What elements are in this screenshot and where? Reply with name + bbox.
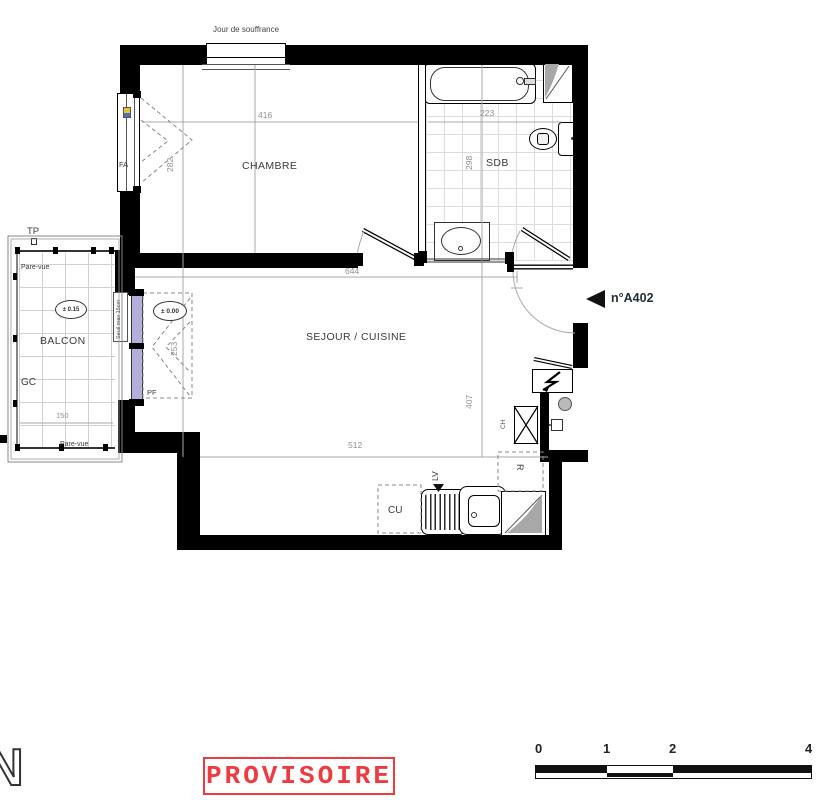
kitchen-sink-drain — [471, 512, 477, 518]
bathtub — [424, 63, 536, 104]
dim-sdb-width: 223 — [480, 108, 494, 118]
scale-bar-rule — [535, 765, 812, 779]
label-cu: CU — [388, 505, 402, 516]
dim-pf-width: 253 — [169, 342, 179, 356]
scale-tick-4: 4 — [805, 741, 812, 756]
label-lv: LV — [430, 471, 440, 481]
dim-chambre-width: 416 — [258, 110, 272, 120]
shaft-top — [543, 63, 573, 103]
scale-bar: 0 1 2 4 — [535, 741, 815, 785]
meter-box — [551, 419, 563, 431]
wall-left-upper — [120, 45, 140, 95]
toilet-seat — [537, 133, 549, 145]
bathtub-inner — [430, 67, 529, 101]
kitchen-sink — [459, 486, 506, 535]
scale-seg-1-2-bottom — [607, 773, 673, 777]
wall-top — [120, 45, 588, 65]
room-label-sdb: SDB — [486, 157, 509, 169]
label-jour-de-souffrance: Jour de souffrance — [205, 25, 287, 34]
label-refrigerator: R — [515, 464, 525, 471]
shaft-bottom — [501, 491, 546, 536]
dim-sejour-depth: 407 — [464, 395, 474, 409]
floor-plan: CHAMBRE SDB SEJOUR / CUISINE BALCON Jour… — [0, 0, 817, 800]
window-fa-marker-icon — [123, 107, 131, 118]
label-gc: GC — [21, 377, 36, 388]
label-tp: TP — [27, 226, 39, 237]
wall-entry-jamb — [573, 323, 588, 368]
scale-seg-0-1-bottom — [536, 773, 607, 777]
room-label-sejour: SEJOUR / CUISINE — [306, 331, 406, 343]
sdb-sink-drain — [458, 246, 463, 251]
provisoire-stamp: PROVISOIRE — [203, 757, 395, 795]
wall-right-upper — [573, 45, 588, 268]
scale-tick-2: 2 — [669, 741, 676, 756]
label-ch: CH — [500, 420, 507, 429]
wall-bottom — [195, 535, 562, 550]
ch-unit — [514, 406, 538, 444]
apartment-number: n°A402 — [611, 291, 654, 305]
electrical-panel — [532, 369, 573, 393]
scale-seg-2-4-bottom — [673, 773, 811, 777]
label-seuil: Seuil max 15cm — [116, 300, 122, 339]
level-balcony-value: ± 0.15 — [63, 307, 80, 313]
tp-marker — [31, 238, 37, 245]
dim-balcon-width: 150 — [56, 411, 69, 420]
dim-chambre-depth: 282 — [165, 158, 175, 172]
scale-tick-0: 0 — [535, 741, 542, 756]
room-label-balcon: BALCON — [40, 335, 86, 347]
dim-sdb-depth: 298 — [464, 156, 474, 170]
label-fa: FA — [119, 160, 128, 169]
wall-balcony-attach — [115, 250, 135, 295]
window-sill — [202, 64, 290, 70]
wall-tech-inner — [540, 392, 549, 452]
provisoire-stamp-text: PROVISOIRE — [206, 761, 392, 791]
entrance-arrow-icon — [586, 290, 605, 308]
wall-tech-bottom — [540, 450, 588, 462]
dim-sejour-width-bottom: 512 — [348, 440, 362, 450]
label-pare-vue-top: Pare-vue — [21, 264, 49, 271]
bathtub-spout-icon — [524, 78, 536, 85]
wall-sejour-left — [118, 400, 135, 453]
window-pf-glazing — [131, 293, 143, 405]
scale-tick-1: 1 — [603, 741, 610, 756]
partition-sdb — [418, 65, 426, 262]
window-inner-line — [207, 57, 285, 58]
level-badge-balcony: ± 0.15 — [55, 300, 87, 319]
label-pf: PF — [147, 388, 157, 397]
dim-sejour-width: 644 — [345, 266, 359, 276]
level-sejour-value: ± 0.00 — [161, 308, 179, 315]
room-label-chambre: CHAMBRE — [242, 160, 297, 172]
bathtub-faucet-icon — [516, 77, 524, 85]
label-pare-vue-bottom: Pare-vue — [60, 441, 88, 448]
kitchen-sink-bowl — [468, 495, 500, 527]
scale-seg-1-2-top — [607, 766, 673, 773]
level-badge-sejour: ± 0.00 — [153, 301, 187, 321]
scale-seg-0-1-top — [536, 766, 607, 773]
north-letter-partial: N — [0, 738, 24, 798]
water-heater-circle — [558, 397, 572, 411]
scale-seg-2-4-top — [673, 766, 811, 773]
wall-chambre-sejour — [125, 253, 358, 268]
window-jour-de-souffrance — [206, 43, 286, 65]
